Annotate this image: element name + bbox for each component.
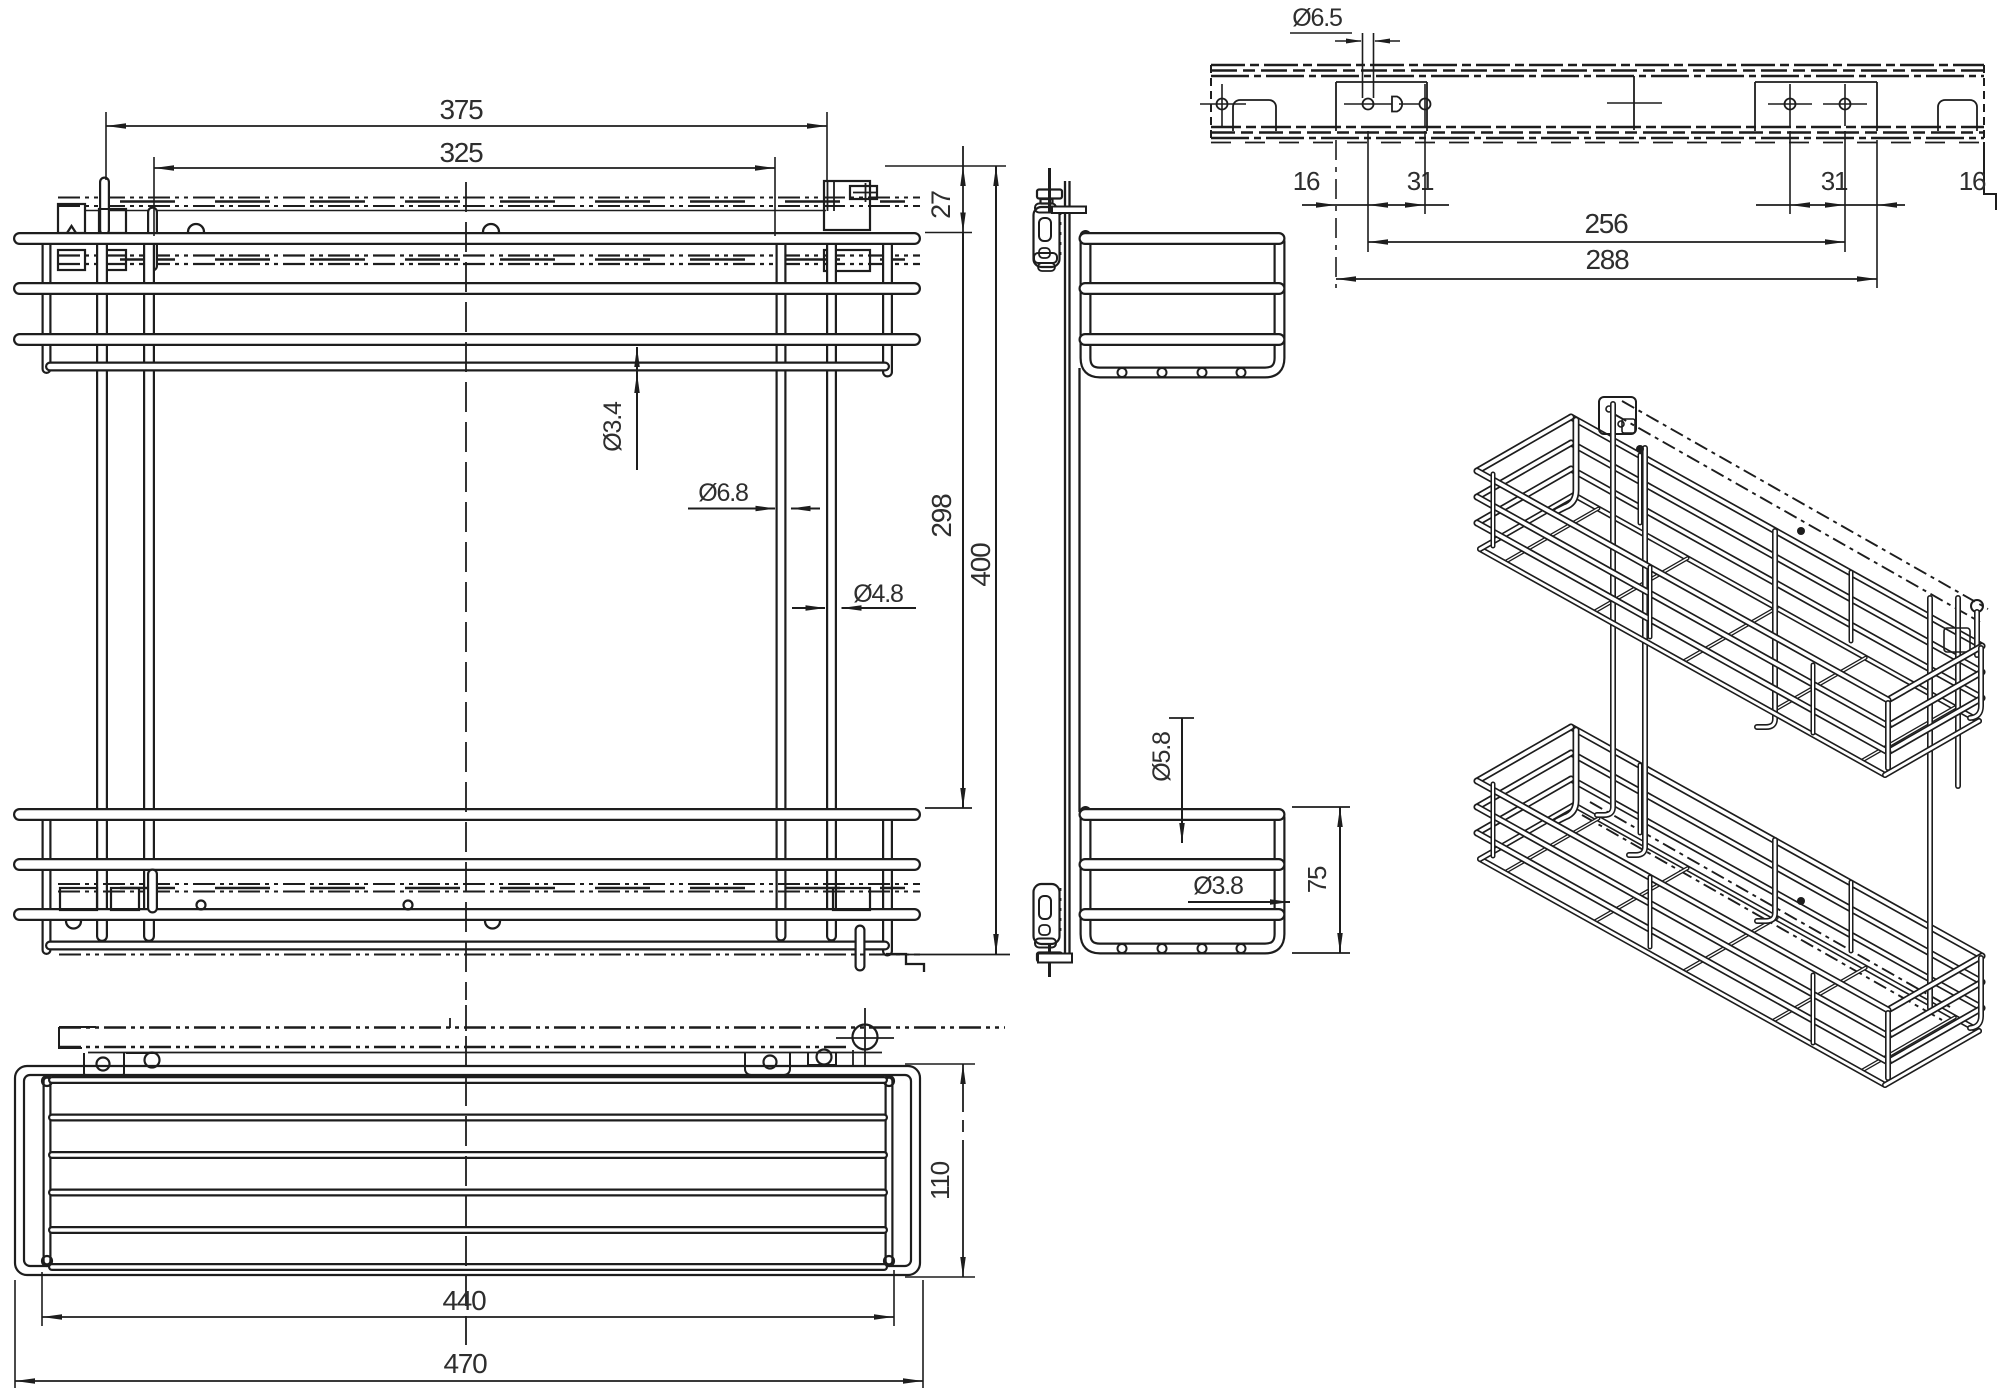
svg-text:Ø5.8: Ø5.8 <box>1148 732 1176 782</box>
svg-text:288: 288 <box>1585 244 1629 275</box>
svg-text:375: 375 <box>439 94 483 125</box>
svg-text:27: 27 <box>926 191 956 219</box>
svg-text:298: 298 <box>926 494 957 538</box>
svg-text:110: 110 <box>925 1161 955 1200</box>
svg-text:31: 31 <box>1407 166 1434 196</box>
svg-text:16: 16 <box>1959 166 1986 196</box>
svg-text:440: 440 <box>442 1285 486 1316</box>
svg-text:256: 256 <box>1584 208 1628 239</box>
svg-text:Ø6.8: Ø6.8 <box>698 479 748 507</box>
svg-text:325: 325 <box>439 137 483 168</box>
svg-text:400: 400 <box>965 543 996 587</box>
svg-text:75: 75 <box>1302 866 1332 893</box>
svg-text:Ø3.4: Ø3.4 <box>599 401 627 452</box>
svg-text:470: 470 <box>443 1348 487 1379</box>
svg-text:31: 31 <box>1821 166 1848 196</box>
svg-text:Ø6.5: Ø6.5 <box>1292 4 1342 32</box>
svg-text:16: 16 <box>1293 166 1320 196</box>
svg-text:Ø4.8: Ø4.8 <box>853 580 903 608</box>
svg-text:Ø3.8: Ø3.8 <box>1193 872 1243 900</box>
